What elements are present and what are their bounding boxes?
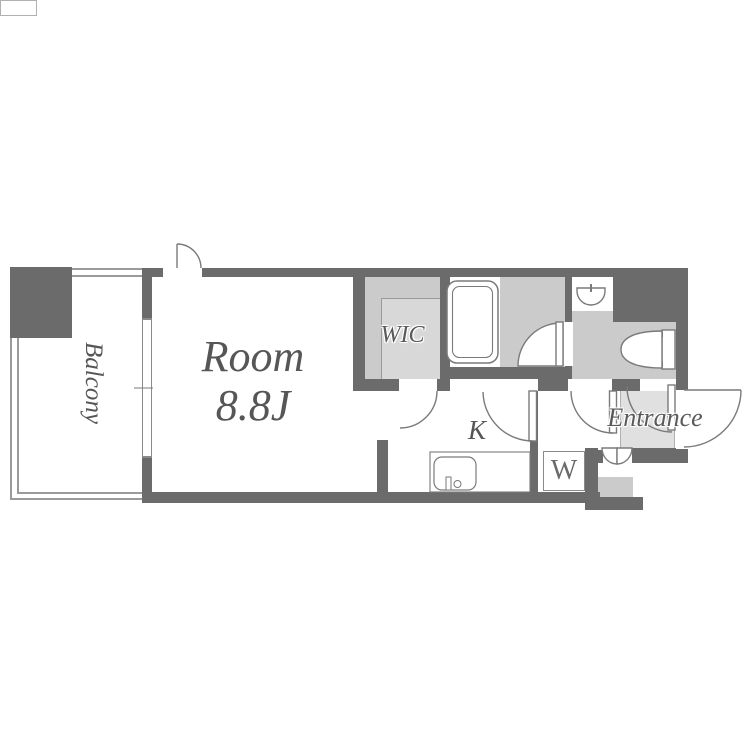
wall-washroom-top-b [612,379,640,391]
wall-top [142,268,688,277]
balcony-rail-top-inner [72,275,142,277]
washer-label: W [551,455,577,487]
porch-floor [598,477,633,498]
sink-faucet-icon [446,477,451,490]
wall-wic-bottom-b [437,379,450,391]
balcony-rail-left-outer [10,338,12,500]
washbasin-floor [572,311,613,379]
bathtub-icon [447,281,498,363]
wall-kitchen-washroom [530,391,538,503]
entrance-label: Entrance [600,403,710,433]
wic-door-arc [400,391,437,428]
wic-label: WIC [365,322,440,349]
bathroom-floor [500,277,565,367]
wall-wic-bath [440,270,450,391]
balcony-window [142,318,152,458]
kitchen-counter [430,452,530,492]
gap-top-door [163,268,202,277]
balcony-label: Balcony [77,303,107,463]
wall-porch-bottom [585,497,643,510]
room-name: Room [152,332,354,381]
balcony-rail-bottom-inner [17,492,142,494]
double-door-right-leaf [617,448,632,464]
wall-kitchen-stub [377,440,388,492]
wall-block-top-right [613,268,676,322]
floor-plan: Room 8.8J Balcony WIC K Entrance W [0,0,750,750]
window-cap-bottom [142,456,152,458]
kitchen-sink-icon [434,457,476,490]
wall-porch-left [585,448,598,503]
wall-wic-bottom-a [353,379,399,391]
gap-toilet-door [640,379,676,391]
washing-machine-box: W [543,451,585,491]
wall-room-left-upper [142,268,152,318]
entrance-step [0,0,37,16]
door-swing-arc [177,244,201,268]
balcony-rail-left-inner [17,338,19,494]
window-cap-top [142,318,152,320]
washbasin-icon [577,288,605,305]
toilet-floor [613,322,676,379]
balcony-rail-bottom-outer [10,498,143,500]
wall-wic-left [353,270,365,391]
gap-bath-door [564,322,573,366]
sink-drain-icon [454,481,461,488]
wall-block-top-left [10,267,72,338]
wall-washroom-top-a [538,379,568,391]
bathtub-inner-icon [453,287,493,358]
room-size: 8.8J [152,381,354,430]
gap-washroom-door [568,379,612,391]
double-door-left-leaf [602,448,617,464]
gap-wic-door [399,379,437,391]
balcony-rail-top-outer [72,268,142,270]
wall-bath-bottom [450,367,572,379]
room-label: Room 8.8J [152,332,354,431]
wall-entrance-bottom [632,448,688,463]
kitchen-label: K [462,415,492,446]
